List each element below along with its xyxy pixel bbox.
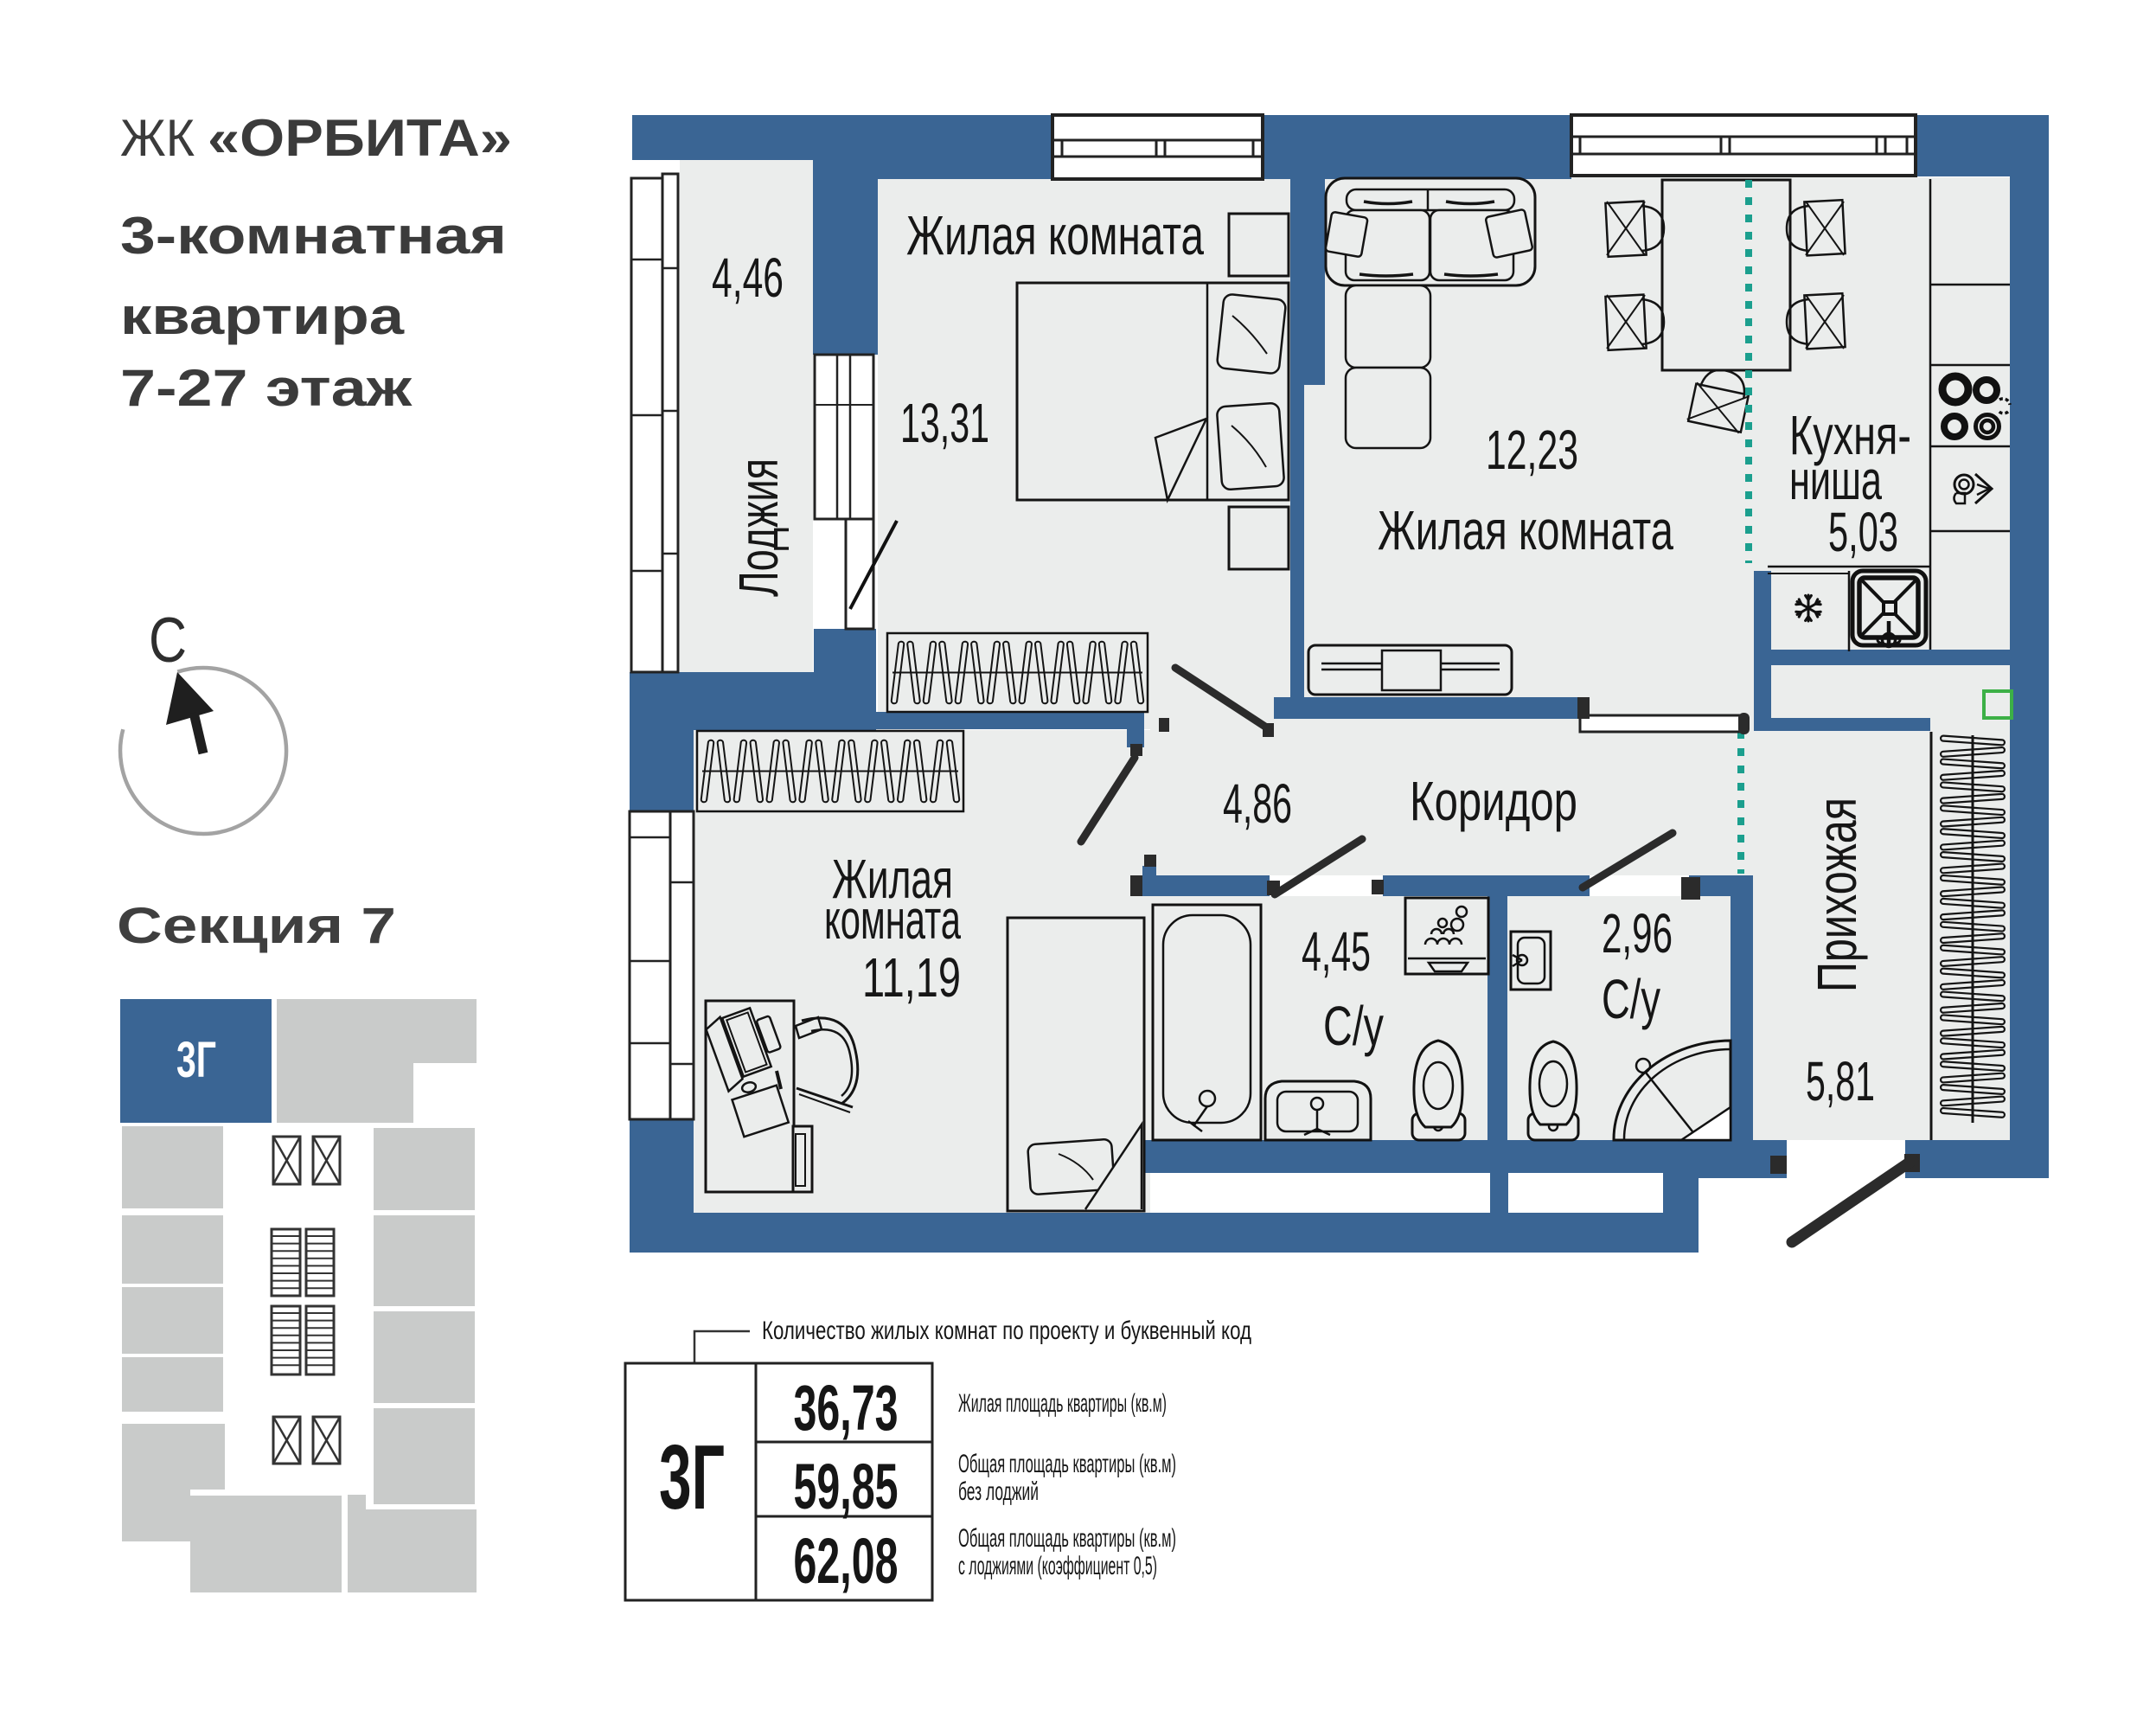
svg-text:Коридор: Коридор	[1410, 770, 1577, 832]
svg-text:36,73: 36,73	[794, 1372, 899, 1444]
svg-text:С: С	[149, 605, 187, 676]
svg-text:13,31: 13,31	[900, 392, 989, 454]
svg-text:3Г: 3Г	[659, 1426, 725, 1528]
svg-text:4,86: 4,86	[1223, 772, 1292, 835]
svg-text:12,23: 12,23	[1486, 419, 1578, 481]
svg-text:3-комнатная: 3-комнатная	[120, 207, 507, 265]
svg-text:Общая площадь квартиры (кв.м): Общая площадь квартиры (кв.м)	[958, 1450, 1176, 1478]
svg-text:С/у: С/у	[1323, 995, 1384, 1057]
svg-text:с лоджиями (коэффициент 0,5): с лоджиями (коэффициент 0,5)	[958, 1552, 1157, 1580]
svg-text:4,45: 4,45	[1302, 920, 1371, 983]
svg-text:62,08: 62,08	[794, 1525, 899, 1597]
svg-text:комната: комната	[824, 888, 961, 951]
svg-text:5,81: 5,81	[1806, 1050, 1875, 1112]
svg-text:Жилая комната: Жилая комната	[1378, 499, 1673, 561]
svg-text:7-27 этаж: 7-27 этаж	[120, 359, 413, 417]
svg-text:Общая площадь квартиры (кв.м): Общая площадь квартиры (кв.м)	[958, 1524, 1176, 1553]
svg-text:3Г: 3Г	[176, 1032, 216, 1088]
svg-text:ЖК«ОРБИТА»: ЖК«ОРБИТА»	[120, 109, 512, 167]
svg-text:5,03: 5,03	[1828, 501, 1898, 563]
svg-text:Количество жилых комнат по про: Количество жилых комнат по проекту и бук…	[762, 1317, 1251, 1345]
svg-text:4,46: 4,46	[712, 247, 784, 309]
svg-text:Секция 7: Секция 7	[117, 898, 396, 954]
svg-text:С/у: С/у	[1602, 968, 1660, 1030]
svg-text:11,19: 11,19	[862, 946, 961, 1009]
svg-text:Прихожая: Прихожая	[1806, 798, 1868, 992]
svg-text:Жилая комната: Жилая комната	[906, 204, 1204, 266]
svg-text:без лоджий: без лоджий	[958, 1477, 1039, 1506]
svg-text:Лоджия: Лоджия	[727, 458, 790, 597]
svg-text:59,85: 59,85	[794, 1451, 899, 1522]
svg-text:Жилая площадь квартиры (кв.м): Жилая площадь квартиры (кв.м)	[958, 1389, 1167, 1418]
svg-text:квартира: квартира	[120, 287, 405, 345]
svg-text:2,96: 2,96	[1602, 902, 1673, 964]
